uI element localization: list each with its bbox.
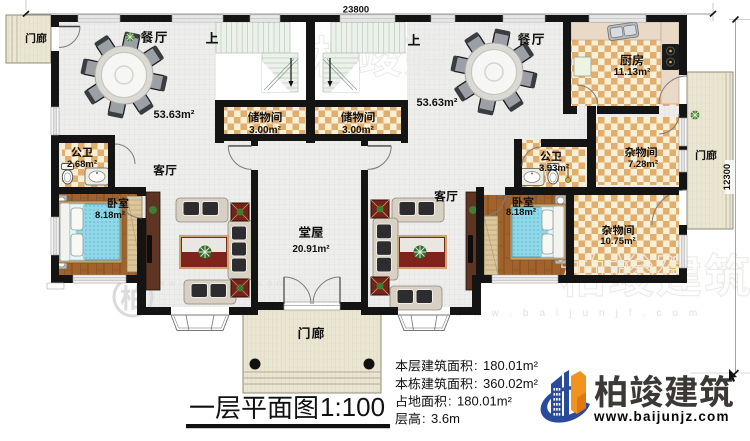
svg-text:10.75m²: 10.75m² bbox=[600, 236, 635, 247]
svg-text::: : bbox=[448, 394, 452, 409]
svg-text:1:100: 1:100 bbox=[320, 392, 385, 422]
svg-text:7.28m²: 7.28m² bbox=[628, 159, 658, 170]
svg-text:8.18m²: 8.18m² bbox=[95, 210, 125, 221]
svg-text:180.01m²: 180.01m² bbox=[457, 394, 513, 409]
svg-text:360.02m²: 360.02m² bbox=[483, 376, 539, 391]
svg-text:180.01m²: 180.01m² bbox=[483, 358, 539, 373]
svg-text:www.baijunjz.com: www.baijunjz.com bbox=[593, 409, 730, 424]
svg-text:12300: 12300 bbox=[722, 164, 733, 190]
svg-text:20.91m²: 20.91m² bbox=[292, 244, 330, 255]
svg-text:3.00m²: 3.00m² bbox=[342, 125, 374, 136]
svg-text:www.baijunjf.com: www.baijunjf.com bbox=[454, 308, 708, 319]
svg-text::: : bbox=[422, 411, 426, 426]
svg-text:2.68m²: 2.68m² bbox=[67, 159, 97, 170]
svg-text:23800: 23800 bbox=[343, 5, 369, 16]
svg-text:3.93m²: 3.93m² bbox=[539, 163, 569, 174]
svg-text:3.6m: 3.6m bbox=[431, 411, 460, 426]
svg-text:3.00m²: 3.00m² bbox=[249, 125, 281, 136]
svg-text:8.18m²: 8.18m² bbox=[506, 207, 536, 218]
svg-text:53.63m²: 53.63m² bbox=[417, 97, 458, 109]
svg-text:11.13m²: 11.13m² bbox=[614, 67, 651, 78]
svg-text::: : bbox=[474, 358, 478, 373]
svg-text:53.63m²: 53.63m² bbox=[154, 109, 195, 121]
svg-text::: : bbox=[474, 376, 478, 391]
